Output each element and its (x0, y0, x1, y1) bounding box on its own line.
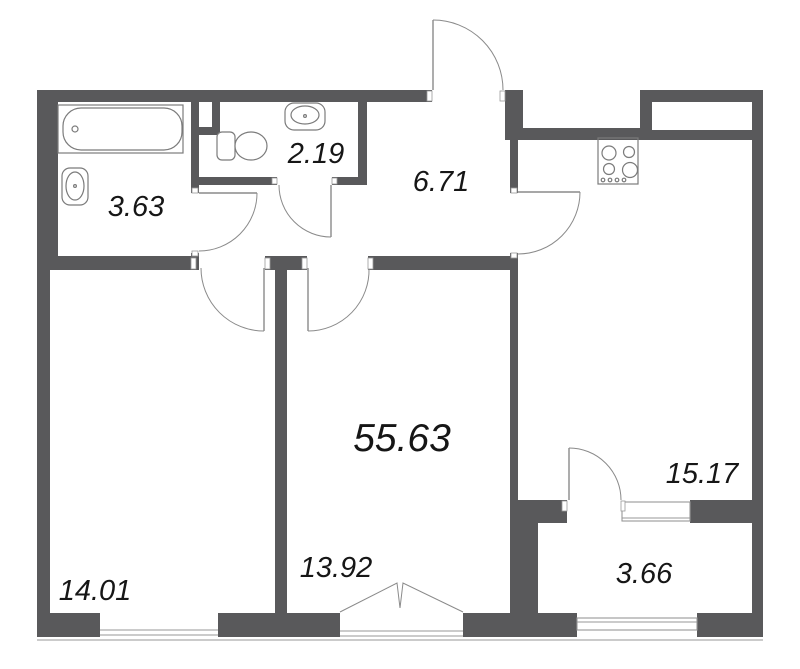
window-room-middle (340, 583, 463, 637)
window-balcony-bottom (577, 613, 697, 637)
wall-left-lower (37, 270, 50, 637)
wall-hall-band-c (368, 256, 518, 270)
floor-plan-svg: 3.63 2.19 6.71 55.63 15.17 14.01 13.92 3… (0, 0, 800, 669)
wall-bottom-2 (218, 613, 340, 637)
toilet-tank (217, 132, 235, 160)
room-label-balcony: 3.66 (616, 558, 673, 590)
wc-door (272, 178, 337, 237)
wall-bath-wc-divider (191, 102, 199, 193)
wall-kitchen-left-upper (510, 140, 518, 193)
wall-kitchen-left-mid (510, 253, 518, 500)
wall-balcony-top-right (690, 500, 752, 523)
room-left-door (191, 258, 270, 331)
bathroom-door (192, 188, 257, 256)
toilet-bowl (235, 132, 267, 160)
toilet (217, 132, 267, 160)
window-room-left (100, 613, 218, 637)
kitchen-door (511, 188, 580, 258)
wall-shaft-left (640, 102, 652, 140)
bathtub (58, 105, 183, 153)
wall-wc-bottom-left (199, 177, 277, 185)
wall-wc-duct-right (212, 102, 220, 127)
bathtub-drain (72, 126, 78, 132)
bathroom-sink (62, 168, 88, 205)
window-sash-lines (340, 583, 463, 612)
wall-right (752, 102, 763, 637)
wall-wc-right (358, 102, 367, 185)
room-label-room-left: 14.01 (59, 575, 132, 607)
stove (598, 138, 638, 184)
window-balcony-top (622, 500, 690, 523)
wall-hall-band-b (265, 256, 307, 270)
labels: 3.63 2.19 6.71 55.63 15.17 14.01 13.92 3… (59, 138, 740, 607)
wall-shaft-bottom (652, 130, 752, 140)
wall-top-left (37, 90, 432, 102)
wall-rooms-divider (275, 270, 287, 613)
wall-bottom-4 (697, 613, 763, 637)
wall-balcony-top-left (517, 500, 567, 523)
room-label-room-middle: 13.92 (300, 552, 373, 584)
wall-bottom-1 (37, 613, 100, 637)
room-label-wc: 2.19 (287, 138, 344, 170)
floor-plan: 3.63 2.19 6.71 55.63 15.17 14.01 13.92 3… (0, 0, 800, 669)
room-middle-door (302, 258, 373, 331)
entrance-door (427, 20, 505, 101)
wall-hall-band-a (37, 256, 196, 270)
room-label-hallway: 6.71 (413, 166, 469, 198)
wall-top-right (640, 90, 763, 102)
wc-sink (285, 103, 325, 130)
wall-wc-duct-bottom (198, 127, 220, 135)
wall-left-upper (37, 90, 58, 270)
fixtures (58, 103, 638, 205)
walls (37, 90, 763, 637)
wall-bottom-3 (463, 613, 577, 637)
total-area-label: 55.63 (353, 417, 451, 460)
balcony-door (562, 448, 625, 511)
room-label-bathroom: 3.63 (108, 191, 164, 223)
room-label-kitchen-living: 15.17 (666, 458, 740, 490)
